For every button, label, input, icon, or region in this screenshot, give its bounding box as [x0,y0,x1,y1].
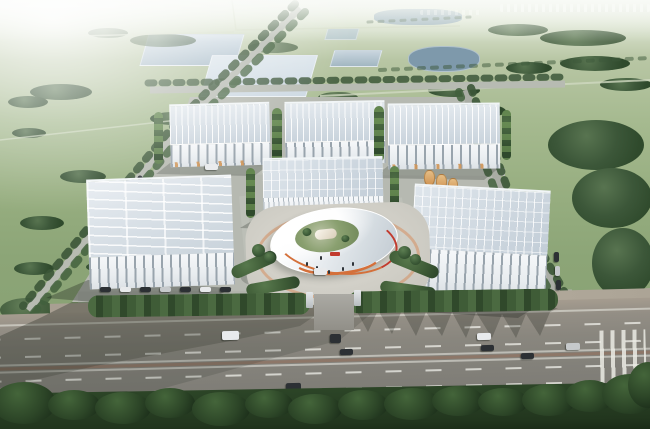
parked-car [140,287,151,292]
person [306,262,308,266]
aerial-rendering [0,0,650,429]
solar-roof [86,175,234,258]
warehouse-facade [89,252,235,289]
parked-car [200,287,211,292]
plaza-tree [398,246,411,259]
roadside-tree [245,390,293,418]
tree-cluster [560,56,630,71]
warehouse-back-left [169,102,271,168]
vehicle [481,345,494,351]
tree-cluster [600,78,650,91]
parked-car [160,287,171,292]
parked-car [180,287,191,292]
tree-row [246,168,255,218]
roadside-tree [338,390,388,420]
person [320,256,322,260]
pond [324,28,359,40]
parked-car [556,280,561,290]
entrance-sign-mark [330,252,340,256]
parked-car [554,252,559,262]
tree-cluster [428,84,480,97]
plaza-tree [252,244,265,257]
forest-patch [548,120,644,170]
roadside-tree [432,386,484,416]
vehicle [330,334,341,343]
tree-cluster [14,262,54,275]
tree-row [272,108,282,164]
tree-row [502,110,511,160]
pond [330,50,383,67]
plaza-tree [264,252,275,263]
vehicle [566,343,580,350]
vehicle [521,353,534,359]
tree-cluster [506,62,552,74]
tree-row [374,106,384,162]
courtyard-pavilion [314,228,337,240]
tree-cluster [540,30,626,46]
roadside-tree [48,390,100,420]
warehouse-facade [388,145,500,170]
parked-car [555,266,560,276]
roadside-tree [192,392,250,426]
gate-pillar [306,292,313,308]
distant-settlement [420,10,480,15]
solar-roof [262,156,383,198]
forest-patch [572,168,650,228]
plaza-tree [410,254,421,265]
parked-car [100,287,111,292]
pond [200,55,318,97]
warehouse-facade [170,143,271,168]
roadside-tree [145,388,195,418]
solar-roof [169,102,270,146]
truck [205,164,218,170]
lake [408,46,480,72]
tree-cluster [20,216,64,230]
tree-cluster [8,96,48,108]
warehouse-front-left [86,175,235,290]
vehicle [477,333,491,340]
tree-cluster [88,28,128,38]
solar-roof [284,100,385,143]
gate-pillar [354,290,361,306]
tree-cluster [12,128,46,138]
entrance-driveway [314,294,354,330]
person [342,267,344,271]
solar-roof [388,103,500,146]
courtyard-tree [302,228,312,237]
person [352,262,354,266]
loading-dock [393,164,496,170]
parked-car [220,287,231,292]
roadside-tree [95,392,151,424]
person [328,270,330,274]
warehouse-front-right [409,184,550,298]
tree-cluster [488,24,548,36]
tree-row [154,112,163,164]
vehicle [222,331,239,340]
solar-roof [411,184,550,256]
roadside-tree [288,394,342,424]
distant-water-strip [0,2,120,8]
tree-cluster [130,34,196,47]
distant-settlement [500,4,650,12]
hedgerow-left [88,292,310,317]
parked-car [120,287,131,292]
hedgerow-right [348,289,558,314]
warehouse-back-right [388,103,501,170]
tree-cluster [248,42,298,53]
vehicle [314,268,327,275]
vehicle [340,349,353,355]
roadside-tree [478,388,528,416]
